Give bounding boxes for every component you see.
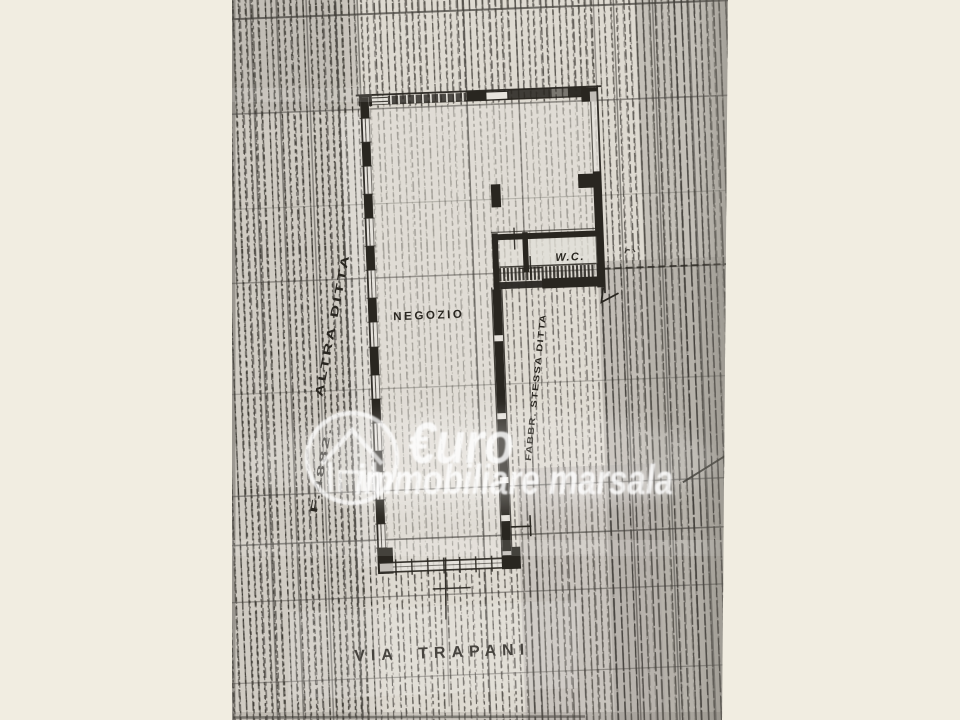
svg-text:immobiliare marsala: immobiliare marsala <box>355 456 673 503</box>
